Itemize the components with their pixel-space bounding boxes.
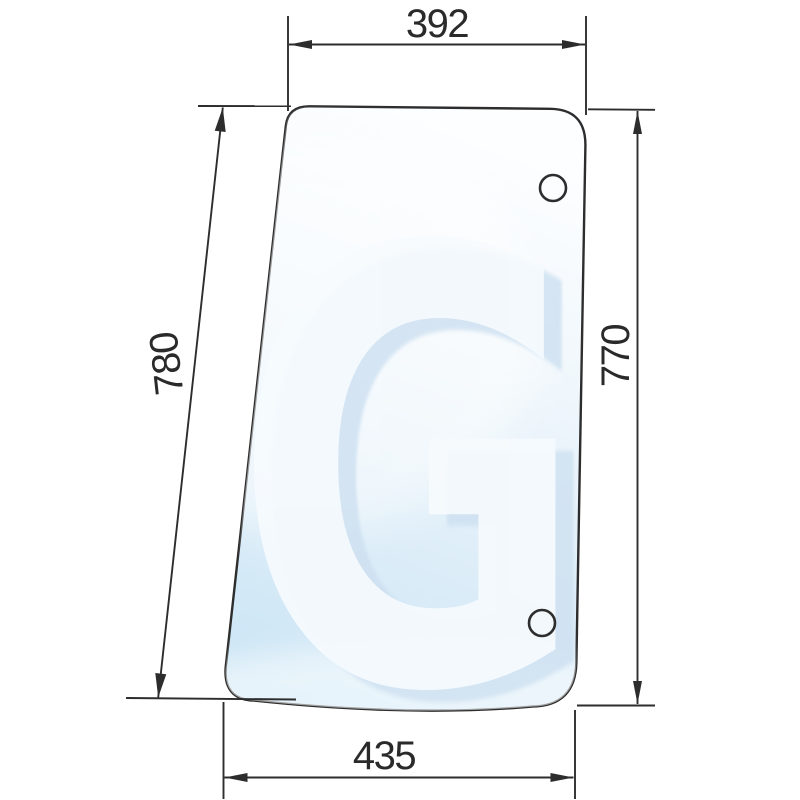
dim-top-arrow-right bbox=[562, 40, 585, 49]
dim-left-height-label: 780 bbox=[142, 330, 193, 397]
glass-dimension-drawing: G G 392 435 bbox=[0, 0, 800, 800]
dim-right-ext-top bbox=[588, 109, 655, 110]
dim-top-arrow-left bbox=[289, 40, 312, 49]
drawing-canvas: G G 392 435 bbox=[0, 0, 800, 800]
dim-bottom-width-label: 435 bbox=[353, 734, 415, 778]
dim-top-width-label: 392 bbox=[406, 2, 468, 46]
dim-left-arrow-top bbox=[215, 108, 226, 133]
dim-top-width: 392 bbox=[288, 2, 586, 115]
dim-bottom-arrow-left bbox=[225, 773, 248, 782]
dim-right-height: 770 bbox=[577, 109, 655, 705]
dim-left-line bbox=[158, 108, 223, 698]
dim-right-arrow-top bbox=[633, 111, 642, 134]
dim-right-arrow-bottom bbox=[633, 681, 642, 704]
dim-bottom-width: 435 bbox=[224, 702, 576, 799]
dim-right-height-label: 770 bbox=[594, 325, 638, 387]
dim-left-arrow-bottom bbox=[155, 673, 166, 698]
dim-bottom-arrow-right bbox=[551, 773, 574, 782]
